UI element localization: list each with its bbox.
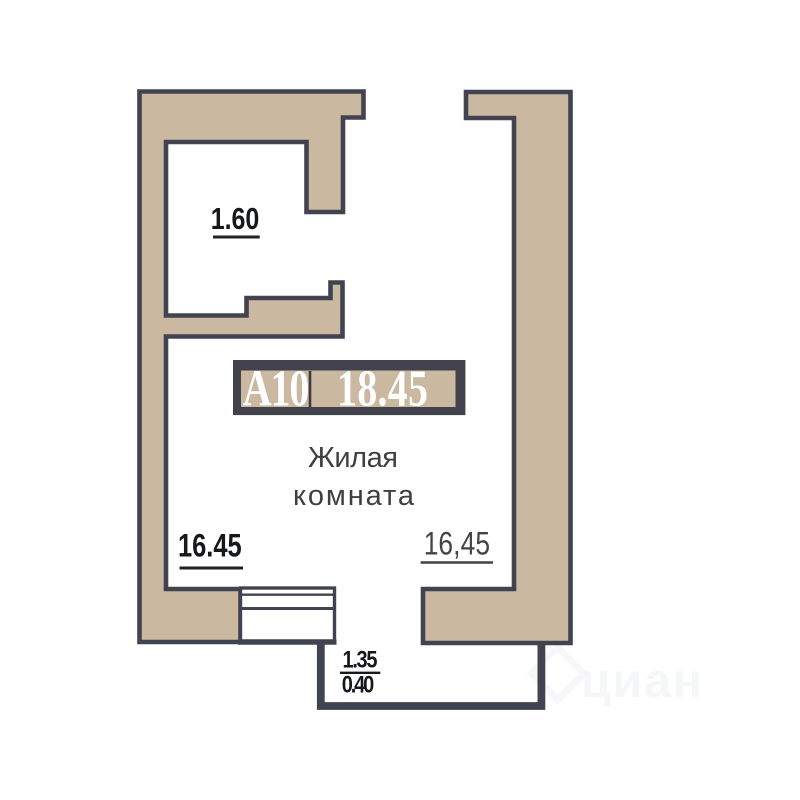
svg-text:1.35: 1.35 [343, 646, 378, 673]
svg-text:A10: A10 [243, 360, 310, 417]
svg-text:циан: циан [581, 655, 702, 708]
svg-text:16.45: 16.45 [178, 529, 242, 565]
svg-text:Жилая: Жилая [308, 442, 398, 474]
svg-text:16,45: 16,45 [424, 526, 490, 562]
svg-text:0.40: 0.40 [342, 671, 375, 698]
svg-text:1.60: 1.60 [211, 202, 260, 236]
svg-text:18.45: 18.45 [337, 360, 428, 417]
svg-text:комната: комната [293, 480, 415, 512]
